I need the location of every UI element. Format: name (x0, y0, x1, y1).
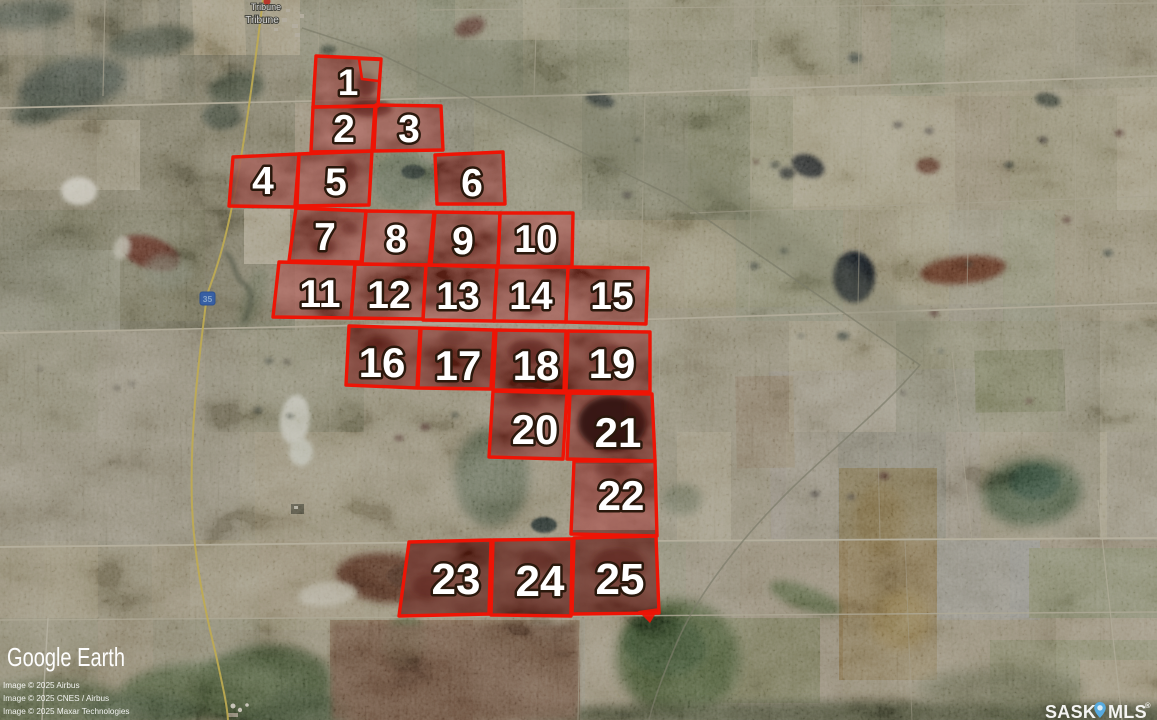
svg-text:20: 20 (512, 406, 559, 453)
svg-text:Google Earth: Google Earth (7, 642, 125, 672)
svg-text:22: 22 (598, 472, 645, 519)
svg-text:24: 24 (516, 557, 565, 606)
svg-text:16: 16 (359, 339, 406, 386)
svg-text:10: 10 (514, 218, 557, 261)
svg-text:Image © 2025 Maxar Technologie: Image © 2025 Maxar Technologies (3, 707, 130, 716)
svg-text:3: 3 (398, 108, 420, 151)
svg-text:8: 8 (385, 218, 407, 261)
svg-text:17: 17 (435, 342, 482, 389)
svg-text:19: 19 (589, 340, 636, 387)
svg-text:13: 13 (436, 275, 479, 318)
svg-text:23: 23 (432, 555, 481, 604)
svg-text:21: 21 (595, 409, 642, 456)
svg-text:12: 12 (367, 274, 410, 317)
svg-text:7: 7 (314, 216, 336, 259)
svg-text:1: 1 (338, 62, 359, 103)
svg-text:18: 18 (513, 342, 560, 389)
svg-text:6: 6 (461, 162, 483, 205)
svg-text:15: 15 (590, 275, 633, 318)
svg-text:®: ® (1145, 701, 1151, 710)
svg-text:SASK: SASK (1045, 702, 1096, 720)
svg-text:11: 11 (299, 273, 340, 316)
svg-text:2: 2 (333, 108, 355, 151)
svg-text:MLS: MLS (1108, 702, 1147, 720)
svg-text:5: 5 (325, 161, 347, 204)
svg-text:4: 4 (252, 160, 274, 203)
svg-text:Image © 2025 Airbus: Image © 2025 Airbus (3, 681, 80, 690)
svg-text:Image © 2025 CNES / Airbus: Image © 2025 CNES / Airbus (3, 694, 109, 703)
svg-text:9: 9 (452, 220, 474, 263)
svg-text:25: 25 (596, 555, 645, 604)
svg-text:14: 14 (509, 275, 553, 318)
